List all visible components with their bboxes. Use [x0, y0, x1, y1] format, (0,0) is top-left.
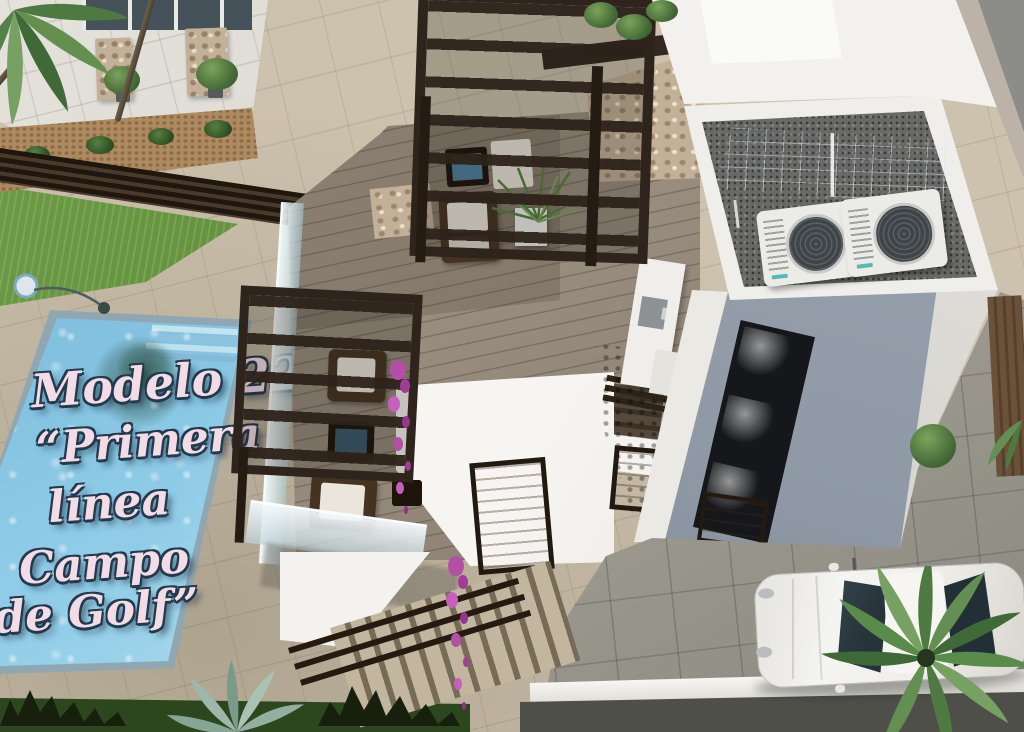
warm-lit-doorway: [469, 457, 554, 575]
side-table: [392, 480, 422, 506]
palm-silhouette: [0, 682, 140, 732]
palm-tree-large: [818, 566, 1024, 732]
hedge-plant: [584, 2, 618, 28]
ac-unit-2: [840, 188, 949, 278]
potted-plant: [196, 58, 238, 90]
garden-shrub: [204, 120, 232, 138]
shrub: [910, 424, 956, 468]
villa-aerial-render: Modelo 22 “Primera línea Campo de Golf”: [0, 0, 1024, 732]
pool-text-line-3: línea: [46, 474, 171, 533]
hedge-plant: [646, 0, 678, 22]
pergola-post: [585, 66, 603, 266]
palm-silhouette: [318, 672, 468, 732]
hood-seam: [792, 579, 794, 679]
pergola-upper: [409, 0, 656, 264]
bougainvillea: [390, 360, 406, 380]
window-pane: [715, 394, 793, 470]
kitchen-faucet: [661, 307, 667, 319]
garden-hose: [4, 266, 134, 324]
palm-glaucous: [162, 648, 312, 732]
pergola-post: [415, 96, 431, 262]
pergola-lower: [231, 285, 423, 482]
bougainvillea: [448, 556, 464, 576]
ac-side-grille: [848, 208, 874, 264]
ac-side-grille: [763, 219, 789, 273]
palm-tree-top-left: [0, 0, 174, 150]
ac-brand-badge: [857, 263, 873, 269]
ac-fan-grille: [783, 210, 850, 277]
ac-brand-badge: [772, 274, 788, 280]
ac-fan-grille: [870, 199, 939, 268]
hedge-plant: [616, 14, 652, 40]
palm-fronds-right-edge: [984, 412, 1024, 500]
window-pane: [730, 326, 808, 402]
